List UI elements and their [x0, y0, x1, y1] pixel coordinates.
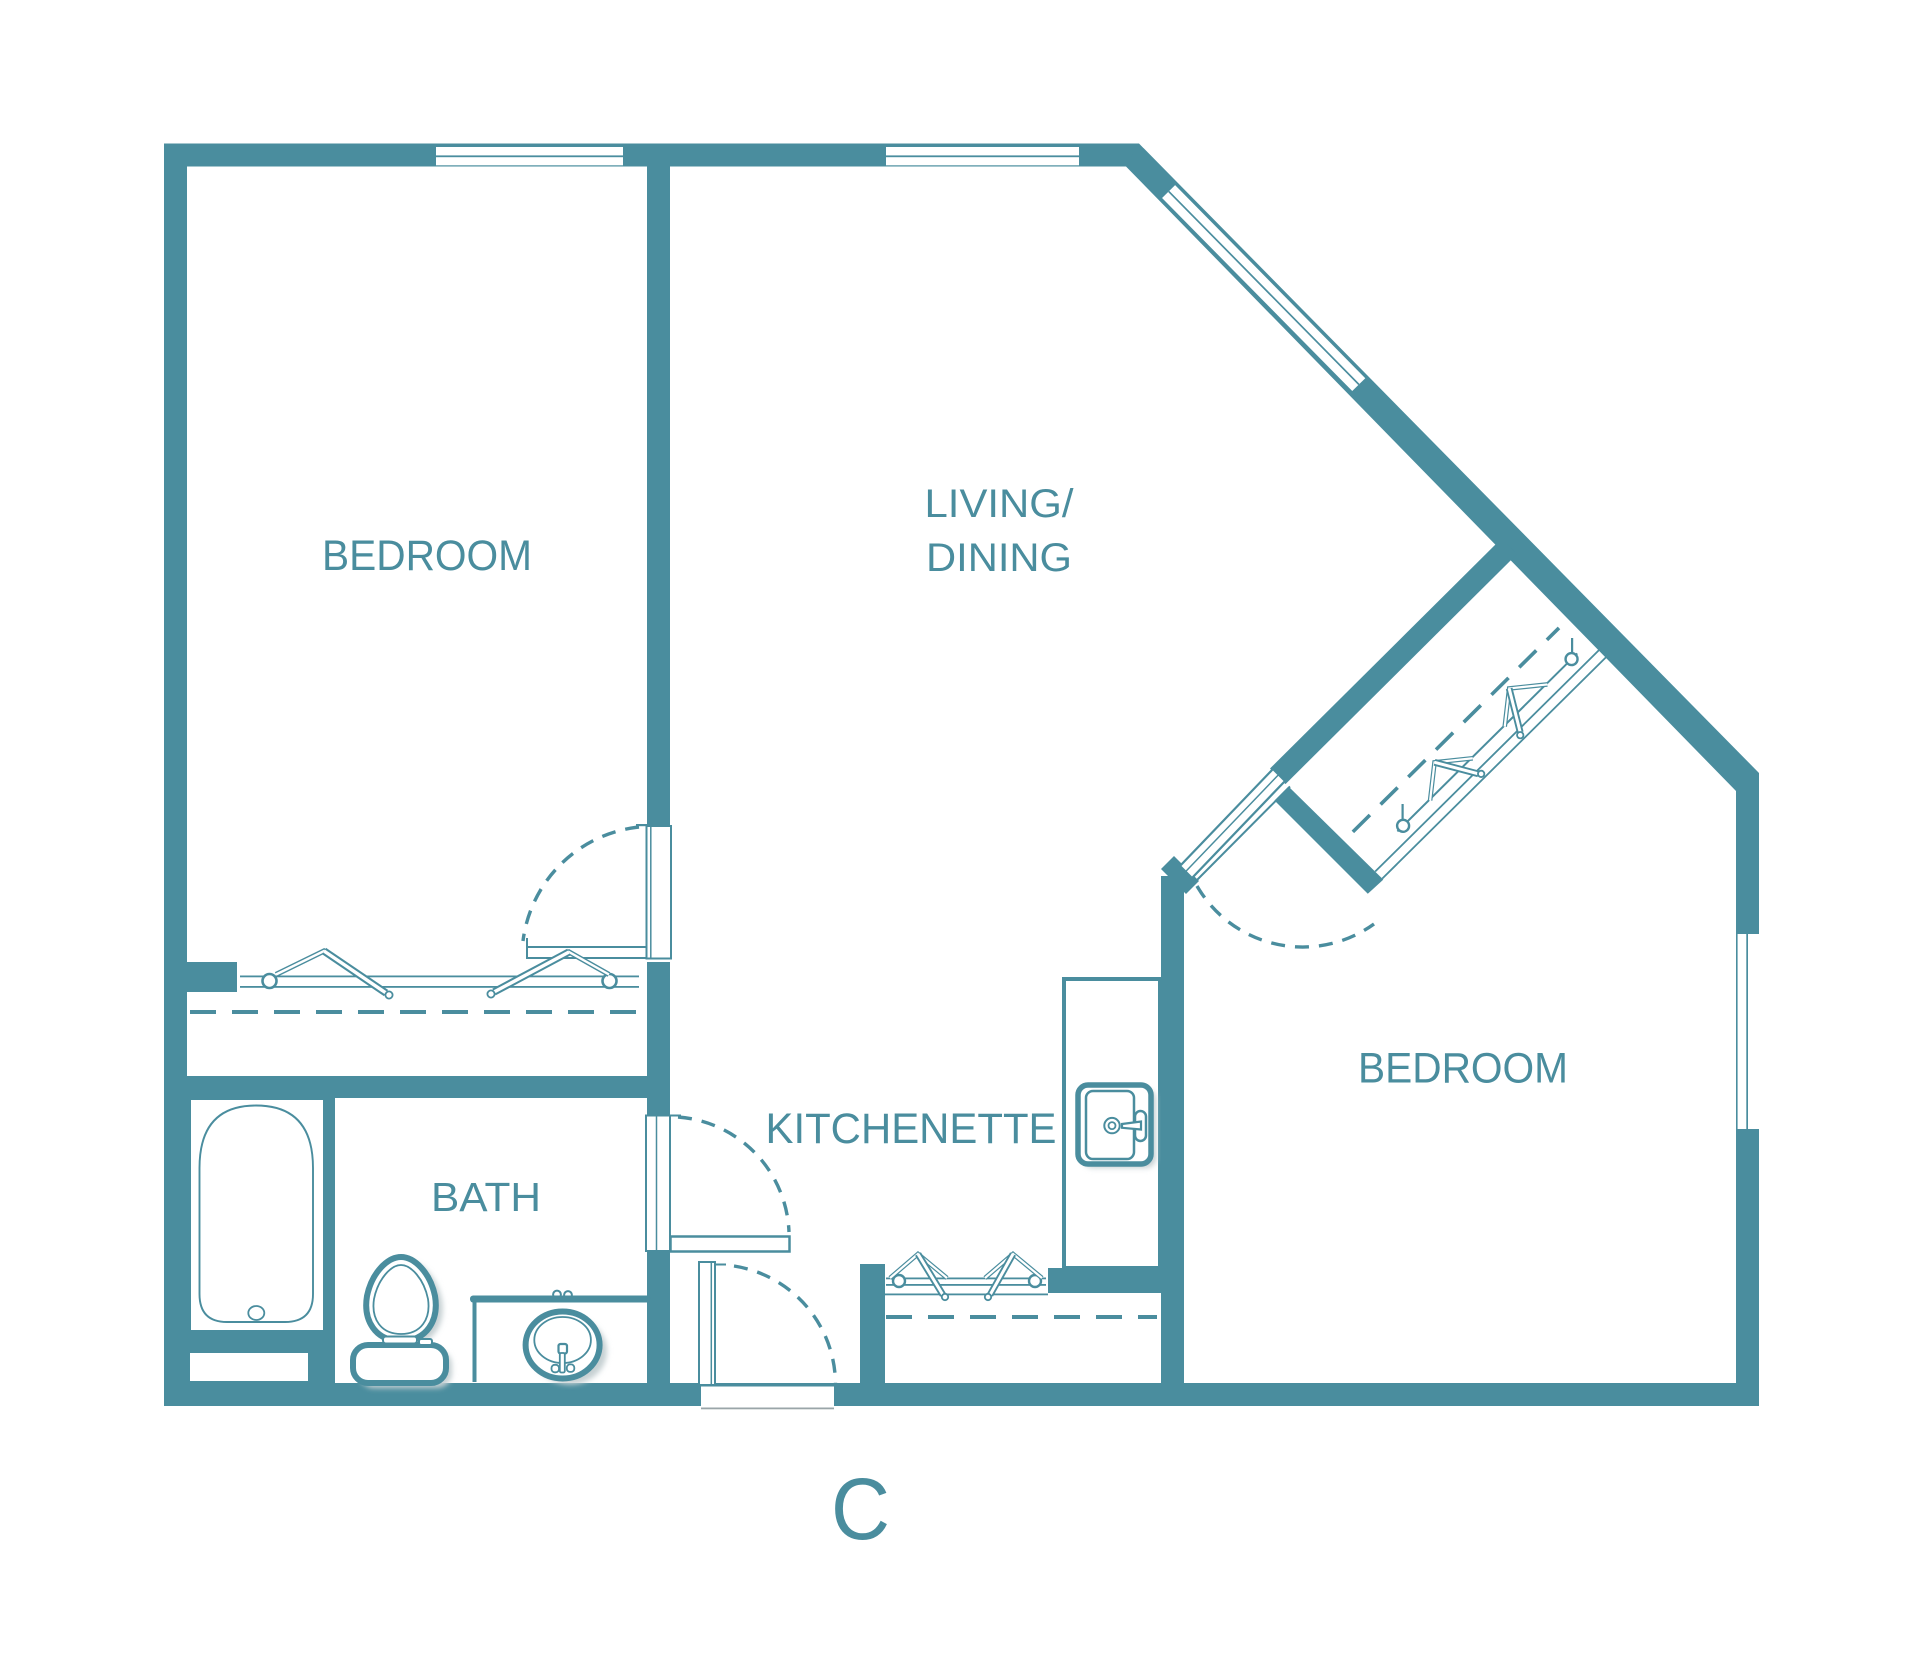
- svg-text:BATH: BATH: [431, 1174, 541, 1220]
- svg-text:BEDROOM: BEDROOM: [1358, 1045, 1568, 1093]
- svg-text:KITCHENETTE: KITCHENETTE: [766, 1106, 1057, 1153]
- svg-text:LIVING/: LIVING/: [925, 482, 1075, 526]
- svg-text:DINING: DINING: [926, 536, 1072, 580]
- svg-text:BEDROOM: BEDROOM: [322, 532, 532, 580]
- svg-text:C: C: [831, 1461, 890, 1558]
